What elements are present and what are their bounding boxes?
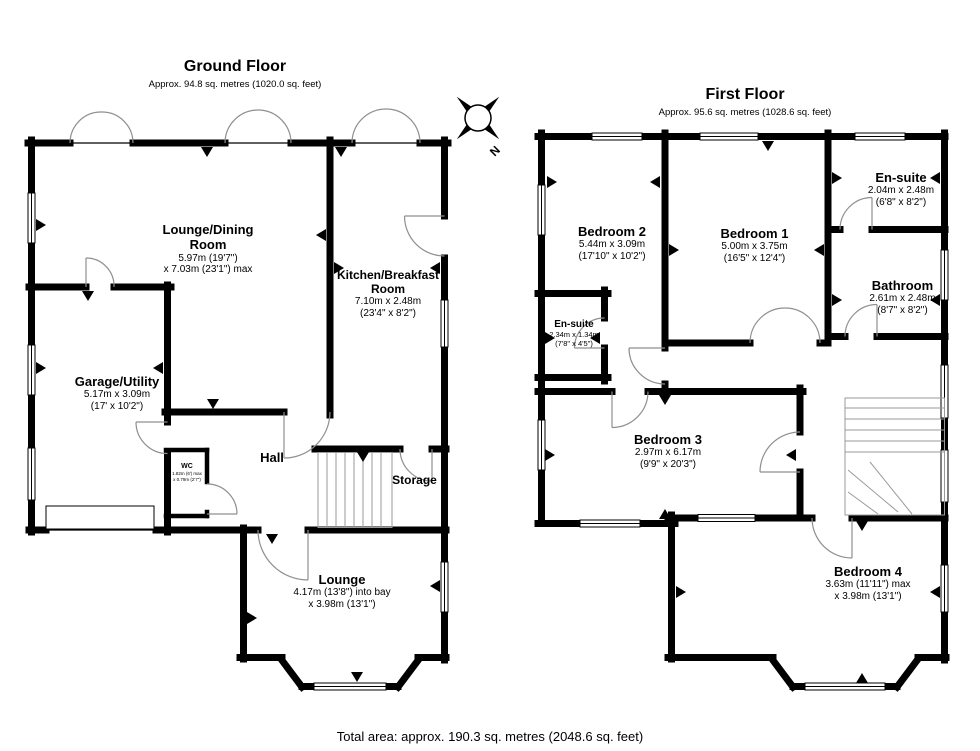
room-name: Bedroom 1 <box>677 226 832 241</box>
floor-title-text: First Floor <box>595 86 895 105</box>
room-dims: x 3.98m (13'1") <box>788 591 948 603</box>
room-label-ensuite1: En-suite 2.04m x 2.48m (6'8" x 8'2") <box>840 170 962 209</box>
room-dims: 5.00m x 3.75m <box>677 241 832 253</box>
room-name: Storage <box>382 473 447 487</box>
room-label-lounge-dining: Lounge/Dining Room 5.97m (19'7") x 7.03m… <box>148 222 268 276</box>
compass-rose: N <box>436 76 521 161</box>
room-dims: (7'8" x 4'5") <box>536 340 612 349</box>
compass-north-letter: N <box>487 143 503 159</box>
room-name: Bedroom 2 <box>532 224 692 239</box>
room-label-bedroom4: Bedroom 4 3.63m (11'11") max x 3.98m (13… <box>788 564 948 603</box>
room-dims: (17' x 10'2") <box>42 401 192 413</box>
room-name: En-suite <box>840 170 962 185</box>
room-name: Garage/Utility <box>42 374 192 389</box>
ground-floor-stairs <box>318 453 392 528</box>
room-dims: 4.17m (13'8") into bay <box>262 587 422 599</box>
total-area-text: Total area: approx. 190.3 sq. metres (20… <box>0 729 980 744</box>
room-dims: (17'10" x 10'2") <box>532 251 692 263</box>
room-name: Kitchen/Breakfast Room <box>326 268 450 296</box>
room-dims: 2.61m x 2.48m <box>840 293 965 305</box>
floor-subtitle-text: Approx. 95.6 sq. metres (1028.6 sq. feet… <box>595 107 895 118</box>
room-name: Bathroom <box>840 278 965 293</box>
room-name: Lounge <box>262 572 422 587</box>
room-label-lounge: Lounge 4.17m (13'8") into bay x 3.98m (1… <box>262 572 422 611</box>
room-dims: (9'9" x 20'3") <box>588 459 748 471</box>
room-label-hall: Hall <box>237 450 307 465</box>
ground-floor-title: Ground Floor Approx. 94.8 sq. metres (10… <box>85 58 385 90</box>
wc-partition-walls <box>166 450 207 516</box>
room-dims: 7.10m x 2.48m <box>326 296 450 308</box>
first-floor-stairs <box>845 398 945 515</box>
room-name: Hall <box>237 450 307 465</box>
room-dims: 2.97m x 6.17m <box>588 447 748 459</box>
room-label-garage: Garage/Utility 5.17m x 3.09m (17' x 10'2… <box>42 374 192 413</box>
first-floor-windows <box>538 133 948 690</box>
room-dims: (16'5" x 12'4") <box>677 253 832 265</box>
room-name: Bedroom 4 <box>788 564 948 579</box>
room-name: Bedroom 3 <box>588 432 748 447</box>
room-label-bathroom: Bathroom 2.61m x 2.48m (8'7" x 8'2") <box>840 278 965 317</box>
floorplan-page: N Ground Floor Approx. 94.8 sq. metres (… <box>0 0 980 751</box>
room-dims: x 7.03m (23'1") max <box>148 264 268 276</box>
room-label-storage: Storage <box>382 473 447 487</box>
room-dims: 2.04m x 2.48m <box>840 185 962 197</box>
room-label-bedroom2: Bedroom 2 5.44m x 3.09m (17'10" x 10'2") <box>532 224 692 263</box>
room-dims: 5.44m x 3.09m <box>532 239 692 251</box>
room-dims: x 3.98m (13'1") <box>262 599 422 611</box>
room-dims: (8'7" x 8'2") <box>840 305 965 317</box>
room-name: WC <box>169 463 205 471</box>
room-dims: 5.97m (19'7") <box>148 253 268 265</box>
room-label-bedroom3: Bedroom 3 2.97m x 6.17m (9'9" x 20'3") <box>588 432 748 471</box>
garage-door <box>46 506 154 529</box>
floor-subtitle-text: Approx. 94.8 sq. metres (1020.0 sq. feet… <box>85 79 385 90</box>
room-dims: x 0.79m (2'7") <box>169 477 205 482</box>
first-floor-plan <box>538 133 948 690</box>
ground-floor-opening-lines <box>46 143 420 530</box>
room-dims: 5.17m x 3.09m <box>42 389 192 401</box>
room-label-kitchen: Kitchen/Breakfast Room 7.10m x 2.48m (23… <box>326 268 450 320</box>
first-floor-title: First Floor Approx. 95.6 sq. metres (102… <box>595 86 895 118</box>
room-label-wc: WC 1.82m (6') max x 0.79m (2'7") <box>169 463 205 482</box>
room-dims: (6'8" x 8'2") <box>840 197 962 209</box>
room-dims: 3.63m (11'11") max <box>788 579 948 591</box>
room-label-bedroom1: Bedroom 1 5.00m x 3.75m (16'5" x 12'4") <box>677 226 832 265</box>
room-name: Lounge/Dining Room <box>148 222 268 253</box>
first-floor-walls <box>538 133 946 687</box>
room-dims: 1.82m (6') max <box>169 471 205 476</box>
room-dims: (23'4" x 8'2") <box>326 308 450 320</box>
room-label-ensuite2: En-suite 2.34m x 1.34m (7'8" x 4'5") <box>536 319 612 348</box>
floor-title-text: Ground Floor <box>85 58 385 77</box>
